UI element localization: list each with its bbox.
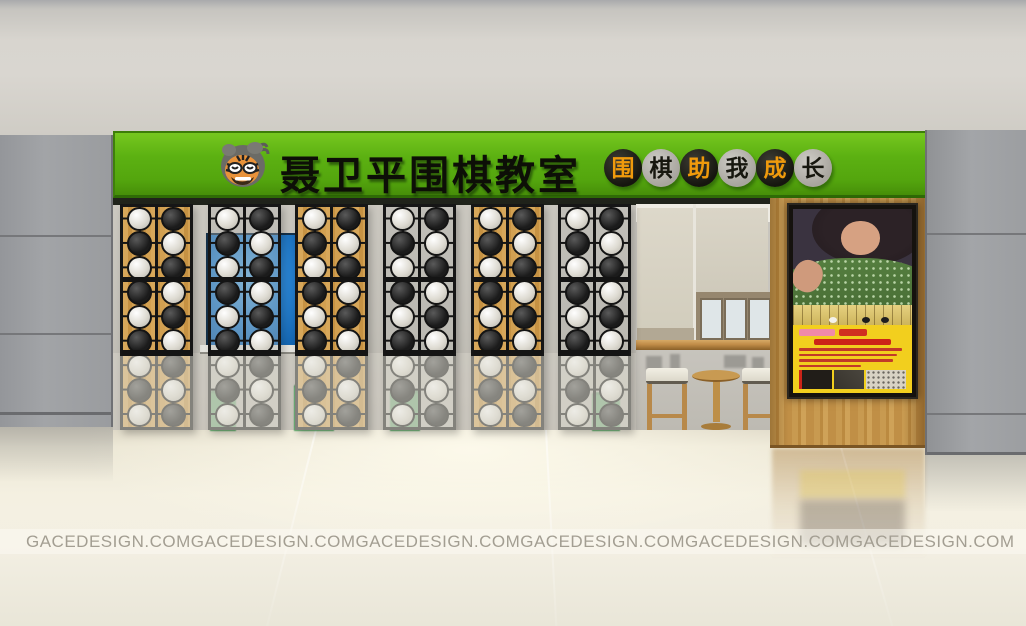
black-go-stone [249,305,274,329]
table-stem [713,378,720,422]
white-go-stone [424,280,449,304]
white-go-stone [390,207,415,231]
tagline-red-box [839,329,867,336]
stool-cushion [646,368,688,384]
right-wall-panel [925,130,1026,455]
roller-blind-right [696,208,768,295]
stool-crossbar [649,414,685,418]
slogan-plaques: 围棋助我成长 [604,149,832,187]
black-go-stone [478,280,503,304]
wall-seam [0,235,111,237]
girl-face [841,221,880,256]
back-window-pane [700,298,723,340]
poster-tagline [799,329,906,336]
white-go-stone [424,231,449,255]
white-go-stone [302,207,327,231]
wall-base-line [0,412,111,415]
black-go-stone [424,305,449,329]
black-go-stone [249,207,274,231]
panel-divider [560,277,629,282]
black-go-stone [215,231,240,255]
slogan-plaque-3: 助 [680,149,718,187]
poster-text-line [799,359,893,361]
black-go-stone [336,305,361,329]
frosted-glass-overlay [471,356,544,430]
watermark-text: GACEDESIGN.COM [191,532,356,552]
wood-handrail [636,340,770,350]
entrance-window [636,204,770,430]
left-wall-panel [0,135,113,427]
white-go-stone [127,207,152,231]
white-go-stone [249,280,274,304]
black-go-stone [302,280,327,304]
lattice-panel-2 [208,204,281,430]
black-go-stone [336,207,361,231]
black-go-stone [127,231,152,255]
round-side-table [692,370,740,430]
white-go-stone [478,305,503,329]
poster-yellow-reflection [800,470,905,498]
table-top [692,370,740,382]
interior-back-wall [696,292,770,342]
lattice-panel-1 [120,204,193,430]
black-go-stone [599,305,624,329]
stool-cushion [742,368,770,384]
black-go-stone [161,305,186,329]
black-go-stone [302,231,327,255]
white-go-stone [478,207,503,231]
white-go-stone [512,231,537,255]
black-go-stone [512,207,537,231]
wall-seam [927,233,1026,235]
white-go-stone [127,305,152,329]
black-go-stone [478,231,503,255]
poster-photo-girl-playing-go [793,209,912,325]
wall-seam [927,413,1026,415]
white-go-stone [336,280,361,304]
poster-screen [793,209,912,393]
white-go-stone [390,305,415,329]
frosted-glass-overlay [383,356,456,430]
tagline-pink [799,329,835,336]
black-go-stone [424,207,449,231]
ceiling [0,0,1026,135]
plaque-char: 棋 [650,149,673,187]
white-go-stone [302,305,327,329]
poster-photo-strip [799,370,906,389]
panel-divider [473,277,542,282]
white-go-stone [161,231,186,255]
promo-poster [787,203,918,399]
poster-text-line [799,348,902,350]
white-go-stone [215,305,240,329]
watermark-text: GACEDESIGN.COM [520,532,685,552]
black-go-stone [599,207,624,231]
poster-text-line [799,354,897,356]
white-go-stone [599,280,624,304]
wood-column [770,198,925,448]
strip-photo [834,370,864,389]
go-board [793,305,912,325]
plaque-char: 成 [764,149,787,187]
wall-seam [0,333,111,335]
roller-blind-left [637,208,694,331]
black-go-stone [390,280,415,304]
panel-divider [210,277,279,282]
slogan-plaque-1: 围 [604,149,642,187]
white-go-stone [215,207,240,231]
panel-divider [122,277,191,282]
plaque-char: 我 [726,149,749,187]
main-sign-text: 聂卫平围棋教室 [280,143,581,201]
slogan-plaque-4: 我 [718,149,756,187]
frosted-glass-overlay [208,356,281,430]
lattice-panel-5 [471,204,544,430]
black-go-stone [390,231,415,255]
lattice-panel-3 [295,204,368,430]
strip-photo [802,370,832,389]
lattice-panel-4 [383,204,456,430]
stool-crossbar [745,414,770,418]
slogan-plaque-2: 棋 [642,149,680,187]
plaque-char: 围 [612,149,635,187]
go-classroom-storefront-render: GACEDESIGN.COMGACEDESIGN.COMGACEDESIGN.C… [0,0,1026,626]
wooden-stool [646,366,688,430]
go-stone-on-board [881,317,889,323]
poster-text-block [793,325,912,393]
frosted-glass-overlay [558,356,631,430]
plaque-char: 助 [688,149,711,187]
table-base [701,423,731,430]
black-go-stone [215,280,240,304]
go-stone-on-board [829,317,837,323]
watermark-band: GACEDESIGN.COMGACEDESIGN.COMGACEDESIGN.C… [0,529,1026,554]
white-go-stone [599,231,624,255]
poster-title-bar [814,339,891,345]
watermark-text: GACEDESIGN.COM [26,532,191,552]
back-window-pane [748,298,770,340]
frosted-glass-overlay [120,356,193,430]
watermark-text: GACEDESIGN.COM [356,532,521,552]
black-go-stone [161,207,186,231]
black-go-stone [565,231,590,255]
lattice-panel-6 [558,204,631,430]
slogan-plaque-6: 长 [794,149,832,187]
plaque-char: 长 [802,149,825,187]
black-go-stone [512,305,537,329]
white-go-stone [161,280,186,304]
frosted-glass-overlay [295,356,368,430]
white-go-stone [336,231,361,255]
white-go-stone [565,305,590,329]
panel-divider [385,277,454,282]
watermark-text: GACEDESIGN.COM [850,532,1015,552]
strip-photo [866,370,906,389]
stool-leg [743,384,748,430]
right-wall-reflection [925,452,1026,512]
back-window-pane [724,298,747,340]
white-go-stone [249,231,274,255]
slogan-plaque-5: 成 [756,149,794,187]
watermark-text: GACEDESIGN.COM [685,532,850,552]
fascia-sign: 聂卫平围棋教室 围棋助我成长 [113,131,925,198]
stool-leg [647,384,652,430]
tiger-mascot-logo [217,138,273,194]
wall-base-line [927,452,1026,455]
panel-divider [297,277,366,282]
left-wall-reflection [0,427,113,482]
wooden-stool [742,366,770,430]
white-go-stone [512,280,537,304]
black-go-stone [127,280,152,304]
go-stone-on-board [862,317,870,323]
stool-leg [682,384,687,430]
white-go-stone [565,207,590,231]
poster-text-line [799,365,861,367]
black-go-stone [565,280,590,304]
